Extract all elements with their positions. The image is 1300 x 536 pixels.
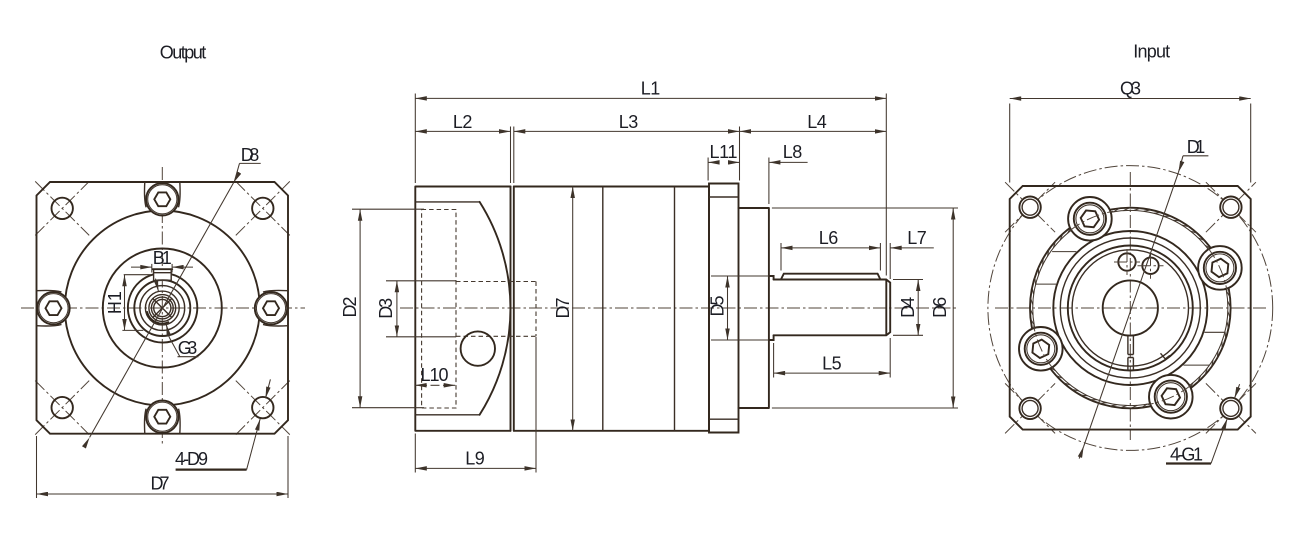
svg-text:4-D9: 4-D9 [175,449,208,469]
svg-text:D1: D1 [1187,137,1206,157]
svg-text:L10: L10 [421,365,449,385]
svg-text:Output: Output [160,43,207,63]
svg-text:G3: G3 [178,338,198,358]
svg-text:Input: Input [1133,42,1170,62]
svg-text:L2: L2 [453,112,473,132]
svg-text:L5: L5 [822,353,842,373]
svg-text:L7: L7 [907,228,927,248]
svg-text:D6: D6 [930,297,950,318]
svg-text:B1: B1 [153,248,172,268]
svg-text:H1: H1 [105,291,125,314]
svg-text:D7: D7 [553,298,573,319]
svg-text:L3: L3 [619,112,639,132]
svg-text:D7: D7 [151,474,170,494]
svg-text:D3: D3 [376,298,396,319]
svg-text:Q3: Q3 [1120,79,1141,99]
svg-text:L9: L9 [465,448,485,468]
svg-text:L6: L6 [819,228,839,248]
svg-text:D8: D8 [241,145,260,165]
svg-text:D5: D5 [708,296,728,317]
svg-text:L4: L4 [807,112,827,132]
svg-text:L1: L1 [641,79,661,99]
svg-text:D4: D4 [898,297,918,318]
svg-text:4-G1: 4-G1 [1170,445,1203,465]
svg-text:D2: D2 [340,297,360,318]
svg-text:L11: L11 [710,142,738,162]
svg-text:L8: L8 [783,142,803,162]
